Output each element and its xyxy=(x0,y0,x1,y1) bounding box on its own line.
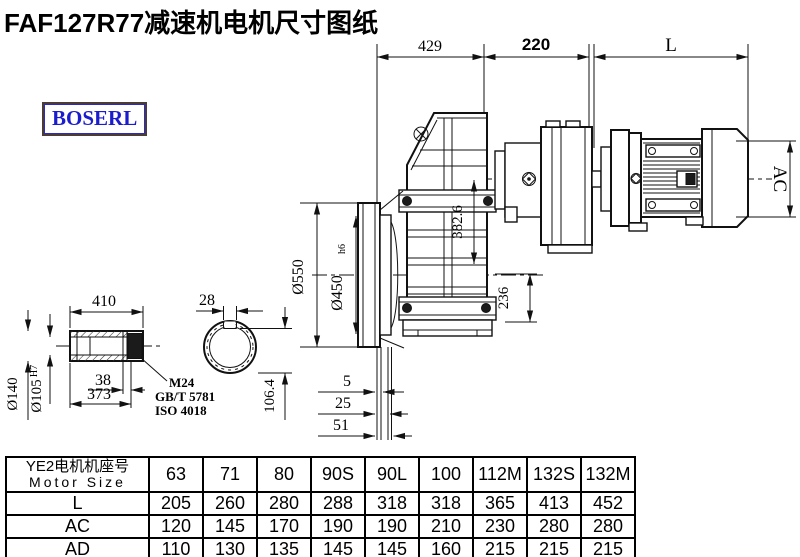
thread-gbt-label: GB/T 5781 xyxy=(155,389,215,404)
table-cell: 452 xyxy=(581,492,635,515)
thread-m24-label: M24 xyxy=(169,375,195,390)
size-column-header: 90S xyxy=(311,457,365,492)
table-cell: 280 xyxy=(581,515,635,538)
row-label: AC xyxy=(6,515,149,538)
size-column-header: 112M xyxy=(473,457,527,492)
table-row-AC: AC 120 145 170 190 190 210 230 280 280 xyxy=(6,515,635,538)
table-header-row: YE2电机机座号 Motor Size 63 71 80 90S 90L 100… xyxy=(6,457,635,492)
dim-105-tolerance: H7 xyxy=(29,365,40,377)
row-label: L xyxy=(6,492,149,515)
dim-L-label: L xyxy=(665,35,677,56)
size-column-header: 90L xyxy=(365,457,419,492)
dim-51-label: 51 xyxy=(333,417,349,434)
dim-410-label: 410 xyxy=(92,293,116,310)
size-column-header: 63 xyxy=(149,457,203,492)
table-cell: 288 xyxy=(311,492,365,515)
dim-106-label: 106.4 xyxy=(262,379,278,413)
r77-gear-stage xyxy=(495,121,629,253)
dimension-105: Ø105 H7 xyxy=(29,314,50,413)
table-cell: 318 xyxy=(365,492,419,515)
dim-450-tolerance: h6 xyxy=(337,244,348,254)
table-cell: 145 xyxy=(365,538,419,557)
row-label: AD xyxy=(6,538,149,557)
dimension-236: 236 xyxy=(495,274,537,322)
gearbox-housing xyxy=(399,113,496,336)
shaft-side-view xyxy=(70,331,143,361)
table-cell: 135 xyxy=(257,538,311,557)
motor-size-header: YE2电机机座号 Motor Size xyxy=(6,457,149,492)
table-cell: 145 xyxy=(311,538,365,557)
table-cell: 215 xyxy=(473,538,527,557)
dim-140-label: Ø140 xyxy=(5,377,21,410)
table-cell: 280 xyxy=(527,515,581,538)
table-cell: 205 xyxy=(149,492,203,515)
table-cell: 230 xyxy=(473,515,527,538)
dim-ac-label: AC xyxy=(769,166,790,192)
thread-callout: M24 GB/T 5781 ISO 4018 xyxy=(141,358,215,418)
band-bolt-icon xyxy=(482,304,491,313)
motor-size-header-en: Motor Size xyxy=(7,475,148,490)
dim-450-label: Ø450 xyxy=(329,275,346,311)
table-cell: 160 xyxy=(419,538,473,557)
table-cell: 130 xyxy=(203,538,257,557)
motor-size-header-cn: YE2电机机座号 xyxy=(7,459,148,475)
thread-iso-label: ISO 4018 xyxy=(155,403,207,418)
table-cell: 210 xyxy=(419,515,473,538)
output-flange xyxy=(358,191,404,440)
motor-size-table: YE2电机机座号 Motor Size 63 71 80 90S 90L 100… xyxy=(5,456,636,557)
table-row-L: L 205 260 280 288 318 318 365 413 452 xyxy=(6,492,635,515)
dim-25-label: 25 xyxy=(335,395,351,412)
dim-220-label: 220 xyxy=(522,35,550,54)
dimensions-flange-offsets: 5 25 51 xyxy=(318,373,412,436)
table-cell: 413 xyxy=(527,492,581,515)
dim-5-label: 5 xyxy=(343,373,351,390)
fan-cowl xyxy=(702,129,748,227)
size-column-header: 71 xyxy=(203,457,257,492)
table-cell: 110 xyxy=(149,538,203,557)
table-cell: 215 xyxy=(581,538,635,557)
dim-382-label: 382.6 xyxy=(450,205,466,239)
dim-236-label: 236 xyxy=(496,286,512,309)
dimension-410: 410 xyxy=(70,293,143,328)
table-cell: 190 xyxy=(365,515,419,538)
table-cell: 260 xyxy=(203,492,257,515)
table-cell: 215 xyxy=(527,538,581,557)
table-cell: 365 xyxy=(473,492,527,515)
dimension-140: Ø140 xyxy=(5,310,28,420)
table-cell: 190 xyxy=(311,515,365,538)
band-bolt-icon xyxy=(484,197,493,206)
table-cell: 145 xyxy=(203,515,257,538)
table-row-AD: AD 110 130 135 145 145 160 215 215 215 xyxy=(6,538,635,557)
drawing-sheet: FAF127R77减速机电机尺寸图纸 BOSERL xyxy=(0,0,800,557)
motor xyxy=(629,129,748,231)
dimension-28: 28 xyxy=(196,292,263,320)
band-bolt-icon xyxy=(403,304,412,313)
dim-550-label: Ø550 xyxy=(290,259,307,295)
size-column-header: 80 xyxy=(257,457,311,492)
dimension-38-373: 38 373 xyxy=(70,361,145,408)
table-cell: 318 xyxy=(419,492,473,515)
dim-429-label: 429 xyxy=(418,38,442,55)
table-cell: 120 xyxy=(149,515,203,538)
size-column-header: 100 xyxy=(419,457,473,492)
table-cell: 170 xyxy=(257,515,311,538)
table-cell: 280 xyxy=(257,492,311,515)
dim-373-label: 373 xyxy=(87,386,111,403)
band-bolt-icon xyxy=(403,197,412,206)
size-column-header: 132S xyxy=(527,457,581,492)
dim-105-label: Ø105 xyxy=(29,379,45,412)
dim-28-label: 28 xyxy=(199,292,215,309)
size-column-header: 132M xyxy=(581,457,635,492)
